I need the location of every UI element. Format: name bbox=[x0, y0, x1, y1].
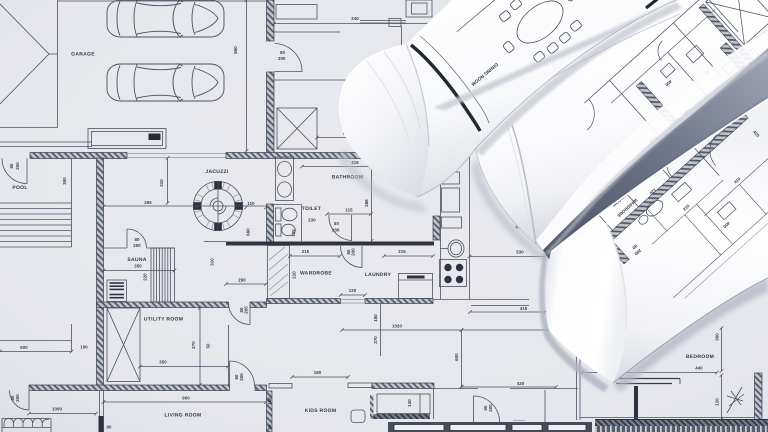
svg-text:310: 310 bbox=[159, 179, 164, 187]
svg-text:360: 360 bbox=[715, 333, 720, 341]
svg-text:SAUNA: SAUNA bbox=[127, 257, 146, 263]
svg-text:130: 130 bbox=[407, 399, 412, 407]
svg-text:290: 290 bbox=[238, 278, 246, 283]
svg-text:115: 115 bbox=[345, 208, 353, 213]
svg-text:110: 110 bbox=[247, 201, 255, 206]
svg-text:600: 600 bbox=[20, 345, 28, 350]
svg-text:800: 800 bbox=[182, 396, 190, 401]
svg-text:BEDROOM: BEDROOM bbox=[686, 354, 714, 360]
svg-text:300: 300 bbox=[62, 177, 67, 185]
svg-text:LIVING ROOM: LIVING ROOM bbox=[165, 413, 202, 419]
svg-text:WARDROBE: WARDROBE bbox=[300, 271, 332, 277]
svg-text:200: 200 bbox=[351, 248, 356, 256]
svg-text:220: 220 bbox=[143, 273, 148, 281]
svg-text:135: 135 bbox=[291, 229, 296, 237]
svg-text:TOILET: TOILET bbox=[302, 206, 322, 212]
svg-text:150: 150 bbox=[267, 397, 272, 405]
svg-text:1020: 1020 bbox=[392, 324, 402, 329]
svg-text:100: 100 bbox=[80, 345, 88, 350]
svg-text:JACUZZI: JACUZZI bbox=[205, 169, 229, 175]
svg-text:80: 80 bbox=[135, 237, 140, 242]
svg-text:200: 200 bbox=[133, 243, 141, 248]
svg-text:1000: 1000 bbox=[52, 407, 62, 412]
svg-text:200: 200 bbox=[488, 404, 493, 412]
svg-text:210: 210 bbox=[292, 271, 297, 279]
svg-text:POOL: POOL bbox=[12, 185, 27, 191]
svg-text:80: 80 bbox=[9, 163, 14, 168]
svg-text:370: 370 bbox=[373, 336, 378, 344]
svg-text:420: 420 bbox=[517, 381, 525, 386]
svg-text:215: 215 bbox=[302, 249, 310, 254]
svg-text:200: 200 bbox=[15, 394, 20, 402]
svg-text:120: 120 bbox=[349, 288, 357, 293]
svg-text:80: 80 bbox=[334, 221, 339, 226]
svg-text:266: 266 bbox=[144, 200, 152, 205]
svg-text:215: 215 bbox=[398, 249, 406, 254]
svg-text:80: 80 bbox=[267, 424, 272, 429]
svg-text:180: 180 bbox=[314, 370, 322, 375]
svg-text:200: 200 bbox=[239, 373, 244, 381]
svg-text:80: 80 bbox=[280, 50, 285, 55]
svg-text:180: 180 bbox=[373, 314, 378, 322]
svg-text:860: 860 bbox=[233, 46, 238, 54]
svg-text:230: 230 bbox=[308, 218, 316, 223]
svg-text:200: 200 bbox=[278, 56, 286, 61]
svg-text:200: 200 bbox=[244, 306, 249, 314]
svg-text:350: 350 bbox=[134, 264, 142, 269]
svg-text:600: 600 bbox=[454, 353, 459, 361]
svg-text:270: 270 bbox=[191, 341, 196, 349]
svg-text:80: 80 bbox=[107, 425, 112, 430]
svg-text:286: 286 bbox=[364, 199, 369, 207]
svg-text:GARAGE: GARAGE bbox=[71, 52, 95, 58]
svg-text:440: 440 bbox=[695, 366, 703, 371]
svg-text:680: 680 bbox=[246, 228, 251, 236]
svg-text:50: 50 bbox=[206, 343, 211, 348]
svg-text:415: 415 bbox=[520, 306, 528, 311]
svg-text:240: 240 bbox=[351, 16, 359, 21]
svg-text:350: 350 bbox=[159, 360, 167, 365]
svg-text:120: 120 bbox=[715, 398, 720, 406]
svg-text:KIDS ROOM: KIDS ROOM bbox=[305, 408, 337, 414]
svg-text:310: 310 bbox=[210, 258, 215, 266]
svg-text:UTILITY ROOM: UTILITY ROOM bbox=[144, 317, 183, 323]
svg-text:LAUNDRY: LAUNDRY bbox=[365, 272, 392, 278]
svg-text:530: 530 bbox=[516, 250, 524, 255]
svg-text:200: 200 bbox=[15, 162, 20, 170]
